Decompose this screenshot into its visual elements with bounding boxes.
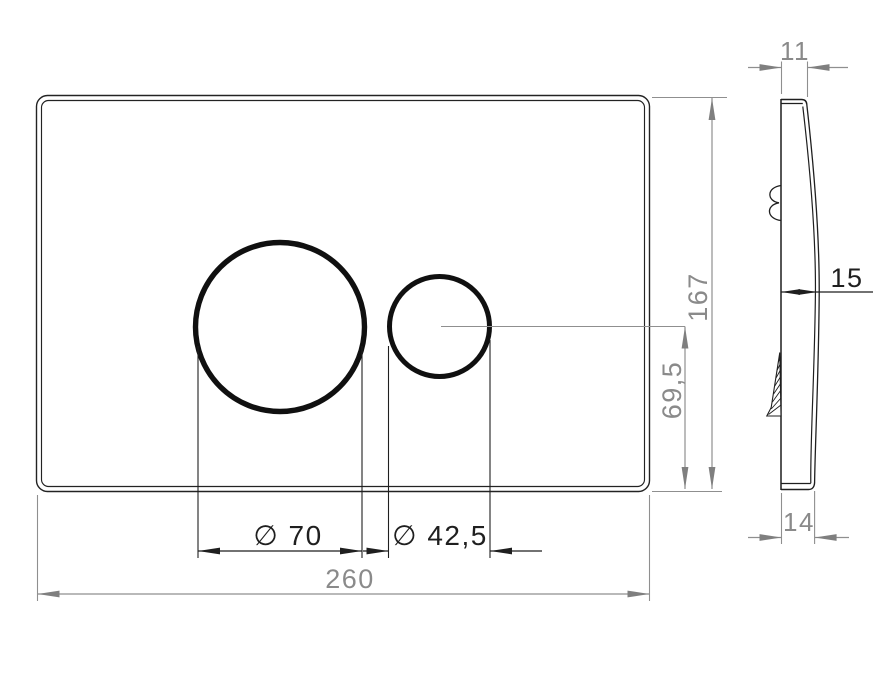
flush-plate-drawing: ∅ 70 ∅ 42,5 260 167 69,5: [0, 0, 889, 673]
dim-large-button-diameter: ∅ 70: [198, 346, 362, 558]
plate-inner-edge: [42, 101, 645, 487]
overall-width-label: 260: [325, 564, 375, 594]
mounting-clip-lower: [767, 353, 781, 417]
small-diameter-label: ∅ 42,5: [392, 520, 488, 551]
arrowhead-up-icon: [682, 327, 689, 349]
dim-button-center-height: 69,5: [441, 327, 688, 490]
profile-back-face-inner: [803, 107, 816, 484]
arrowhead-right-icon: [760, 534, 782, 541]
arrowhead-left-icon: [198, 548, 220, 555]
dim-top-depth: 11: [748, 36, 848, 97]
plate-outer-edge: [37, 96, 650, 492]
button-center-height-label: 69,5: [657, 361, 687, 420]
large-diameter-label: ∅ 70: [253, 520, 322, 551]
arrowhead-down-icon: [709, 467, 716, 489]
arrowhead-left-icon: [815, 534, 837, 541]
arrowhead-right-icon: [628, 591, 650, 598]
arrowhead-left-icon: [781, 289, 800, 295]
large-flush-button: [196, 243, 365, 412]
overall-height-label: 167: [683, 272, 713, 322]
technical-drawing-page: ∅ 70 ∅ 42,5 260 167 69,5: [0, 0, 889, 673]
dim-overall-height: 167: [652, 98, 727, 492]
arrowhead-right-icon: [760, 64, 782, 71]
arrowhead-left-icon: [808, 64, 830, 71]
mounting-clip-upper: [769, 186, 781, 221]
arrowhead-right-icon: [340, 548, 362, 555]
top-depth-label: 11: [780, 36, 810, 66]
mid-depth-label: 15: [830, 263, 863, 293]
arrowhead-right-icon: [799, 289, 818, 295]
arrowhead-left-icon: [490, 548, 512, 555]
dim-mid-depth: 15: [781, 263, 873, 295]
dim-overall-width: 260: [38, 495, 650, 601]
side-view: [767, 99, 819, 490]
dim-bottom-depth: 14: [748, 491, 849, 544]
bottom-depth-label: 14: [783, 507, 815, 537]
arrowhead-right-icon: [367, 548, 389, 555]
front-view: [37, 96, 650, 492]
arrowhead-left-icon: [38, 591, 60, 598]
arrowhead-up-icon: [709, 98, 716, 120]
arrowhead-down-icon: [682, 467, 689, 489]
